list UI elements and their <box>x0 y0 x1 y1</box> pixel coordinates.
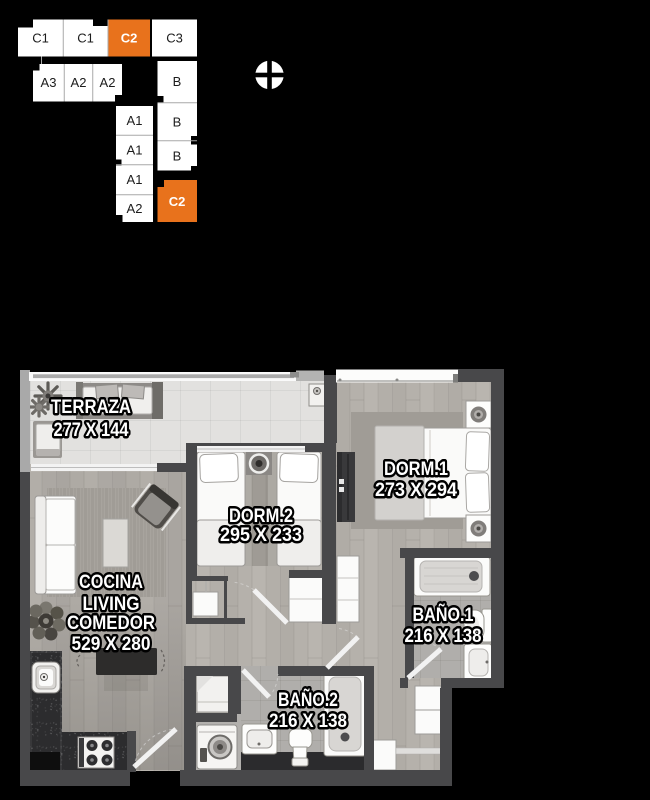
svg-text:A1: A1 <box>127 143 143 158</box>
svg-text:TERRAZA: TERRAZA <box>51 396 131 418</box>
svg-text:277 X 144: 277 X 144 <box>54 419 129 441</box>
svg-text:C1: C1 <box>77 31 94 46</box>
svg-text:295 X 233: 295 X 233 <box>220 524 302 546</box>
svg-text:A2: A2 <box>127 201 143 216</box>
svg-text:273 X 294: 273 X 294 <box>375 479 457 501</box>
svg-text:BAÑO.2: BAÑO.2 <box>278 688 338 711</box>
svg-text:C2: C2 <box>169 194 186 209</box>
svg-text:A2: A2 <box>100 75 116 90</box>
svg-text:B: B <box>173 74 182 89</box>
svg-text:216 X 138: 216 X 138 <box>405 625 482 647</box>
svg-text:216 X 138: 216 X 138 <box>269 710 347 732</box>
svg-text:COCINA: COCINA <box>79 571 143 593</box>
svg-text:A1: A1 <box>127 113 143 128</box>
svg-text:C3: C3 <box>166 31 183 46</box>
svg-text:C2: C2 <box>121 31 138 46</box>
svg-text:BAÑO.1: BAÑO.1 <box>413 603 474 626</box>
svg-text:C1: C1 <box>32 31 49 46</box>
svg-text:B: B <box>173 149 182 164</box>
svg-text:B: B <box>173 115 182 130</box>
svg-text:A2: A2 <box>71 75 87 90</box>
svg-text:COMEDOR: COMEDOR <box>67 612 155 634</box>
svg-text:A3: A3 <box>41 75 57 90</box>
svg-text:DORM.1: DORM.1 <box>384 458 448 480</box>
svg-text:A1: A1 <box>127 172 143 187</box>
svg-text:529 X 280: 529 X 280 <box>72 633 151 655</box>
